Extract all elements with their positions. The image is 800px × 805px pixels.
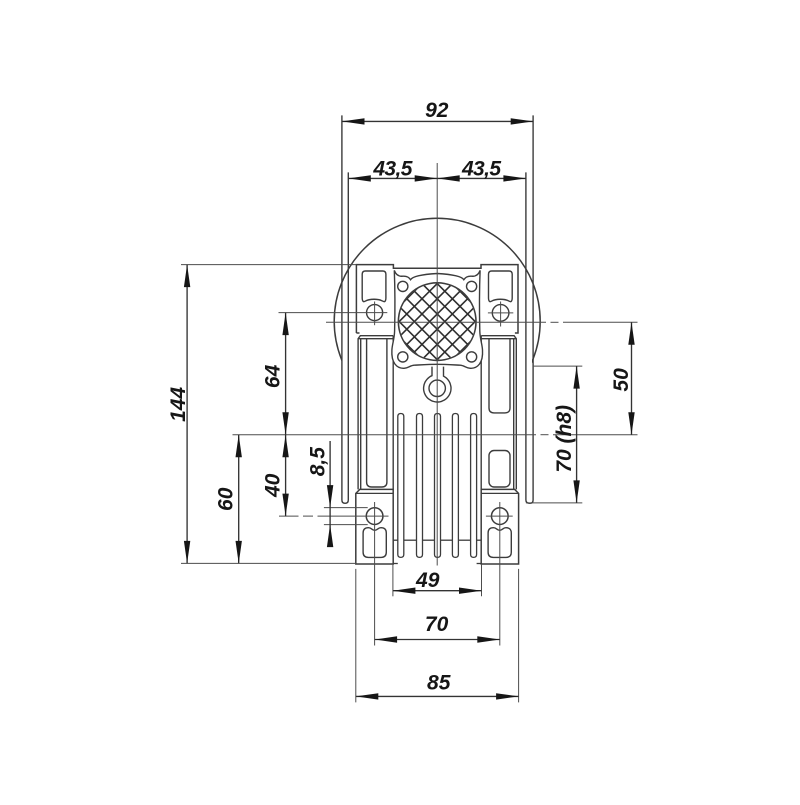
svg-text:70 (h8): 70 (h8) (553, 405, 576, 473)
svg-text:70: 70 (425, 613, 449, 636)
svg-text:43,5: 43,5 (372, 157, 412, 180)
svg-text:40: 40 (262, 473, 285, 498)
svg-text:85: 85 (427, 671, 451, 694)
svg-text:144: 144 (167, 387, 190, 422)
svg-text:60: 60 (215, 487, 238, 511)
svg-text:8,5: 8,5 (307, 447, 330, 477)
svg-text:64: 64 (262, 364, 285, 388)
svg-text:49: 49 (415, 569, 440, 592)
svg-text:43,5: 43,5 (461, 157, 501, 180)
svg-text:92: 92 (425, 99, 449, 122)
svg-text:50: 50 (610, 368, 633, 392)
